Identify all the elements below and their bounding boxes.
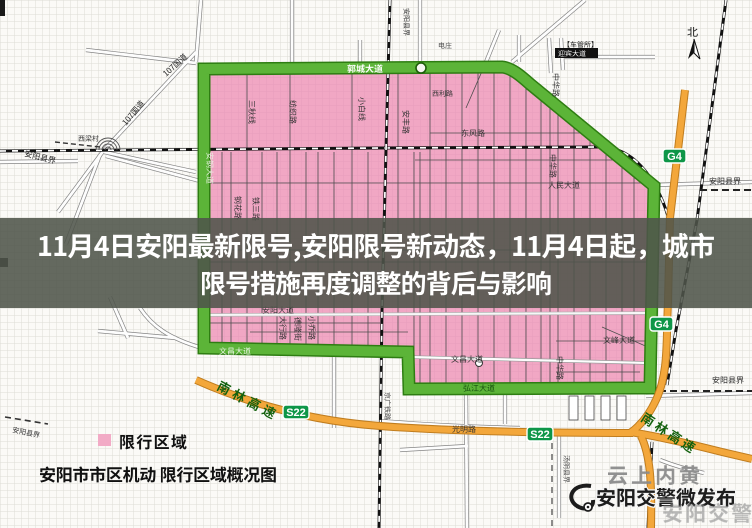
svg-text:S22: S22 — [530, 429, 550, 441]
svg-text:G4: G4 — [654, 319, 670, 331]
svg-text:S22: S22 — [286, 407, 306, 419]
svg-text:G4: G4 — [667, 151, 683, 163]
